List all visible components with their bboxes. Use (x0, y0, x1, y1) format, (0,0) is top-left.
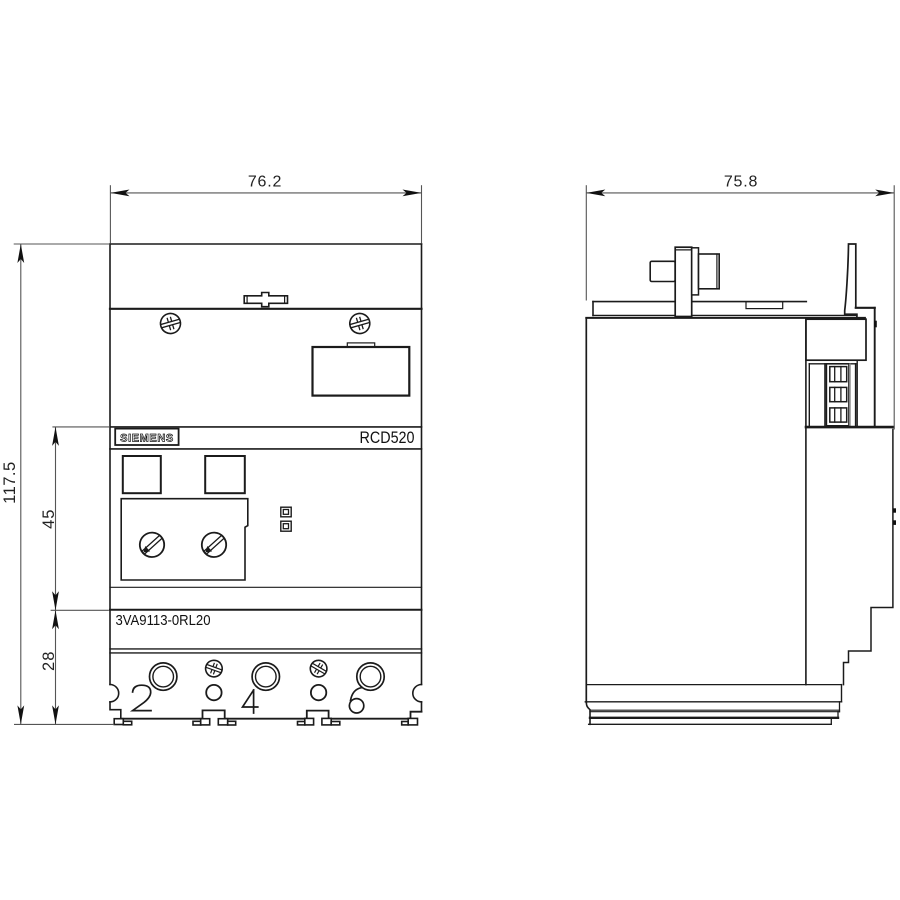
svg-text:28: 28 (40, 651, 58, 671)
svg-text:117.5: 117.5 (1, 461, 19, 504)
svg-text:76.2: 76.2 (248, 174, 282, 191)
svg-text:RCD520: RCD520 (360, 429, 415, 447)
svg-text:45: 45 (40, 509, 58, 529)
svg-text:3VA9113-0RL20: 3VA9113-0RL20 (116, 612, 211, 629)
svg-text:SIEMENS: SIEMENS (120, 433, 174, 445)
svg-text:75.8: 75.8 (724, 174, 758, 191)
